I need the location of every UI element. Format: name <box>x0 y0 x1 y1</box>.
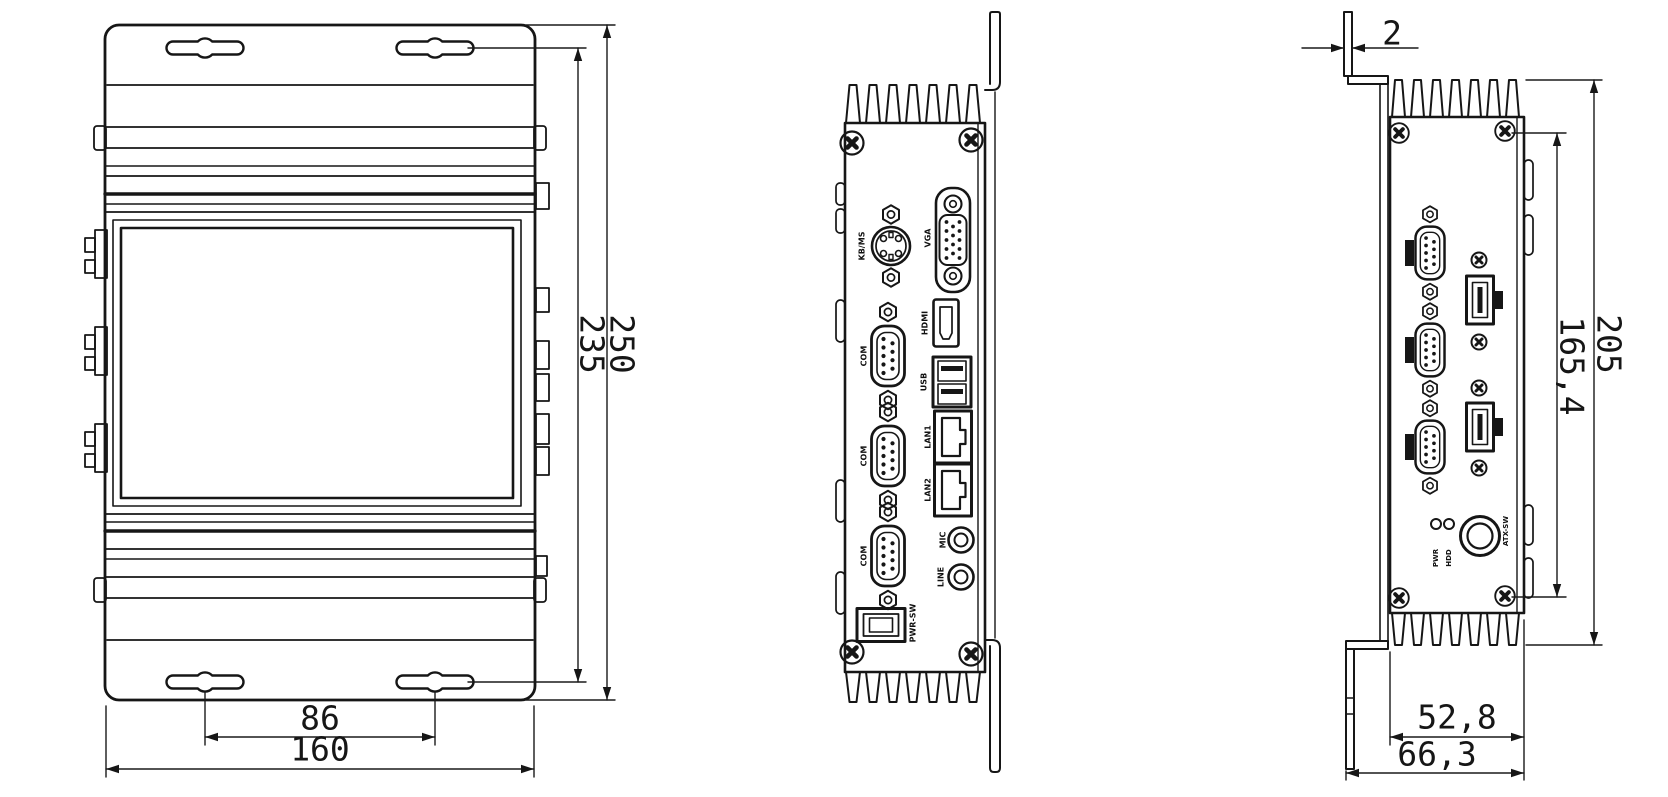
front-panel-view: PWR HDD ATX-SW <box>1344 12 1533 769</box>
corner-screw <box>960 643 983 666</box>
dim-text-66-3: 66,3 <box>1397 735 1476 774</box>
rear-panel-view: KB/MS VGA HDMI USB LAN1 LAN2 MIC LINE CO… <box>836 12 1000 772</box>
com-port <box>872 403 905 509</box>
connector-tab <box>1494 291 1503 309</box>
plan-view <box>85 25 549 700</box>
com-port <box>1415 303 1444 397</box>
hdmi-label: HDMI <box>921 311 930 335</box>
panel-screw <box>1472 253 1487 268</box>
com-port <box>872 503 905 609</box>
usb-label: USB <box>920 373 929 391</box>
corner-screw <box>960 129 983 152</box>
com-port <box>872 303 905 409</box>
mounting-bracket-rear <box>985 12 1000 772</box>
power-led <box>1431 519 1441 529</box>
mic-jack <box>949 528 974 553</box>
lan1-port <box>935 411 972 463</box>
dim-text-165-4: 165,4 <box>1553 316 1592 415</box>
mounting-slot <box>167 38 244 57</box>
ps2-port <box>872 205 910 286</box>
dim-text-250: 250 <box>603 314 642 374</box>
dim-overall-depth: 66,3 <box>1346 735 1524 781</box>
power-button-label: ATX-SW <box>1502 516 1510 546</box>
mounting-slot <box>167 672 244 691</box>
usb-port <box>1467 403 1494 451</box>
power-switch <box>857 609 905 642</box>
dim-text-2: 2 <box>1382 14 1402 53</box>
mic-label: MIC <box>939 531 948 548</box>
corner-screw <box>1389 588 1409 608</box>
usb-port <box>1467 276 1494 324</box>
engineering-drawing: KB/MS VGA HDMI USB LAN1 LAN2 MIC LINE CO… <box>0 0 1668 797</box>
panel-screw <box>1472 335 1487 350</box>
vga-label: VGA <box>924 228 933 248</box>
com-port <box>1415 400 1444 494</box>
corner-screw <box>1389 123 1409 143</box>
dimensions: 235 250 86 160 2 165,4 <box>106 14 1629 781</box>
heatsink-fins-top <box>1392 80 1519 117</box>
usb-dual-port <box>933 357 971 407</box>
corner-screw <box>1495 586 1515 606</box>
com1-label: COM <box>860 346 869 367</box>
connector-tab <box>1405 337 1414 363</box>
connector-tab <box>1494 418 1503 436</box>
drawing-canvas: KB/MS VGA HDMI USB LAN1 LAN2 MIC LINE CO… <box>0 0 1668 797</box>
com2-label: COM <box>860 446 869 467</box>
power-switch-label: PWR-SW <box>909 603 918 642</box>
ps2-label: KB/MS <box>858 231 867 260</box>
hdmi-port <box>934 300 959 347</box>
lan2-label: LAN2 <box>924 478 933 502</box>
connector-tab <box>1405 434 1414 460</box>
dim-text-52-8: 52,8 <box>1417 698 1496 737</box>
line-out-jack <box>949 565 974 590</box>
mounting-bracket-front <box>1344 12 1388 769</box>
heatsink-fins-bottom <box>1392 613 1519 645</box>
dim-text-205: 205 <box>1590 314 1629 374</box>
lan1-label: LAN1 <box>924 425 933 449</box>
power-button <box>1461 517 1500 556</box>
heatsink-fins-top <box>846 85 980 123</box>
hdd-led-label: HDD <box>1445 549 1453 567</box>
heatsink-fins-bottom <box>846 672 980 702</box>
side-connector-tabs-right <box>536 183 549 576</box>
heatsink-fin-lines <box>105 85 535 640</box>
chassis-clips-right <box>1524 160 1533 598</box>
com-port <box>1415 206 1444 300</box>
chassis-clips-left <box>836 183 845 614</box>
cover-plate <box>113 220 521 506</box>
power-led-label: PWR <box>1432 548 1440 567</box>
dim-bracket-thickness: 2 <box>1302 14 1418 53</box>
dim-text-160: 160 <box>290 730 350 769</box>
connector-tab <box>1405 240 1414 266</box>
panel-screw <box>1472 381 1487 396</box>
lan2-port <box>935 464 972 516</box>
com3-label: COM <box>860 546 869 567</box>
dim-mount-slot-span: 235 <box>468 48 612 682</box>
vga-port <box>936 188 970 292</box>
mounting-slot <box>397 672 474 691</box>
panel-screw <box>1472 461 1487 476</box>
hdd-led <box>1444 519 1454 529</box>
mounting-slot <box>397 38 474 57</box>
corner-screw <box>1495 121 1515 141</box>
line-out-label: LINE <box>937 567 946 587</box>
